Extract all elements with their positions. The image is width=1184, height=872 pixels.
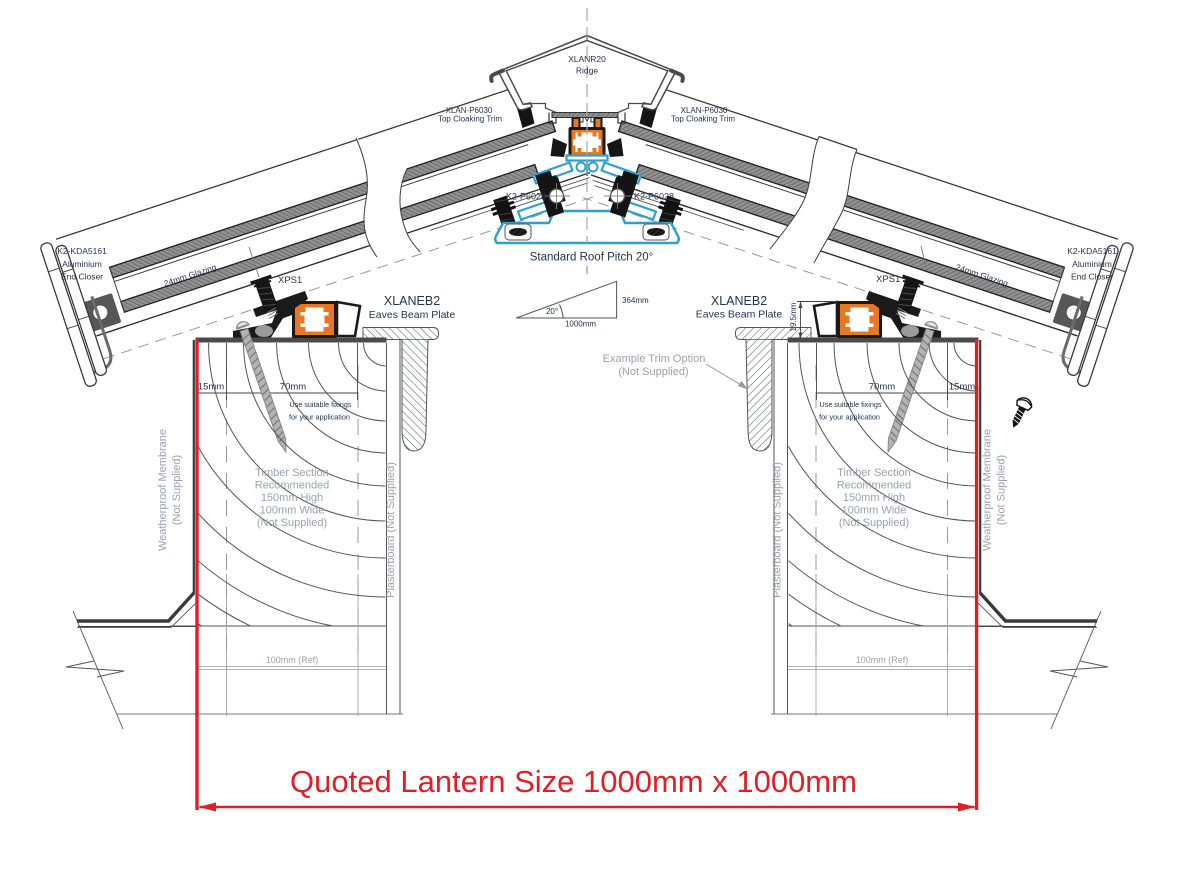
svg-text:15mm: 15mm <box>198 382 224 393</box>
svg-text:Use suitable fixings: Use suitable fixings <box>290 400 352 409</box>
svg-text:Timber Section: Timber Section <box>837 467 911 479</box>
svg-text:Weatherproof Membrane: Weatherproof Membrane <box>982 429 994 551</box>
svg-text:K2-P6028: K2-P6028 <box>506 192 546 202</box>
svg-text:Ridge: Ridge <box>576 66 598 76</box>
svg-text:Recommended: Recommended <box>255 480 330 492</box>
svg-text:End Closer: End Closer <box>61 272 103 282</box>
svg-text:15mm: 15mm <box>949 382 975 393</box>
svg-text:Plasterboard (Not Supplied): Plasterboard (Not Supplied) <box>772 462 784 598</box>
svg-text:(Not Supplied): (Not Supplied) <box>618 366 688 378</box>
svg-text:Timber Section: Timber Section <box>255 467 329 479</box>
svg-text:(Not Supplied): (Not Supplied) <box>171 455 183 525</box>
svg-text:150mm High: 150mm High <box>843 492 905 504</box>
svg-text:XPS1: XPS1 <box>876 274 900 285</box>
svg-text:Recommended: Recommended <box>837 480 912 492</box>
svg-text:(Not Supplied): (Not Supplied) <box>996 455 1008 525</box>
svg-text:Eaves Beam Plate: Eaves Beam Plate <box>696 309 783 321</box>
svg-text:Example Trim Option: Example Trim Option <box>603 353 706 365</box>
svg-text:(Not Supplied): (Not Supplied) <box>257 517 327 529</box>
svg-text:70mm: 70mm <box>869 382 895 393</box>
svg-text:Top Cloaking Trim: Top Cloaking Trim <box>438 115 502 124</box>
svg-text:364mm: 364mm <box>622 296 649 305</box>
svg-text:Weatherproof Membrane: Weatherproof Membrane <box>157 429 169 551</box>
svg-text:for your application: for your application <box>289 413 350 422</box>
svg-text:Aluminium: Aluminium <box>1072 259 1112 269</box>
svg-text:100mm (Ref): 100mm (Ref) <box>856 655 909 665</box>
svg-text:19.5mm: 19.5mm <box>789 302 798 331</box>
svg-text:Standard Roof Pitch 20°: Standard Roof Pitch 20° <box>530 252 654 264</box>
svg-text:K2-KDA5161: K2-KDA5161 <box>57 246 107 256</box>
svg-text:End Closer: End Closer <box>1071 272 1113 282</box>
svg-text:XPS1: XPS1 <box>278 275 302 286</box>
svg-text:Eaves Beam Plate: Eaves Beam Plate <box>369 309 456 321</box>
svg-text:XLANEB2: XLANEB2 <box>711 294 767 308</box>
svg-text:for your application: for your application <box>819 413 880 422</box>
svg-text:K2-KDA5161: K2-KDA5161 <box>1067 246 1117 256</box>
svg-text:(Not Supplied): (Not Supplied) <box>839 517 909 529</box>
svg-text:150mm High: 150mm High <box>261 492 323 504</box>
svg-text:XLANR20: XLANR20 <box>568 54 606 64</box>
svg-text:Quoted Lantern Size 1000mm x 1: Quoted Lantern Size 1000mm x 1000mm <box>290 764 857 799</box>
svg-text:100mm Wide: 100mm Wide <box>260 505 325 517</box>
svg-text:Aluminium: Aluminium <box>62 259 102 269</box>
svg-text:100mm Wide: 100mm Wide <box>842 505 907 517</box>
svg-text:K2-P6028: K2-P6028 <box>634 192 674 202</box>
svg-text:XLANEB2: XLANEB2 <box>384 294 440 308</box>
svg-text:20°: 20° <box>546 307 558 316</box>
svg-text:Plasterboard (Not Supplied): Plasterboard (Not Supplied) <box>385 462 397 598</box>
svg-text:100mm (Ref): 100mm (Ref) <box>266 655 319 665</box>
svg-text:70mm: 70mm <box>280 382 306 393</box>
svg-text:Top Cloaking Trim: Top Cloaking Trim <box>671 115 735 124</box>
svg-text:Use suitable fixings: Use suitable fixings <box>820 400 882 409</box>
svg-text:1000mm: 1000mm <box>565 320 596 329</box>
